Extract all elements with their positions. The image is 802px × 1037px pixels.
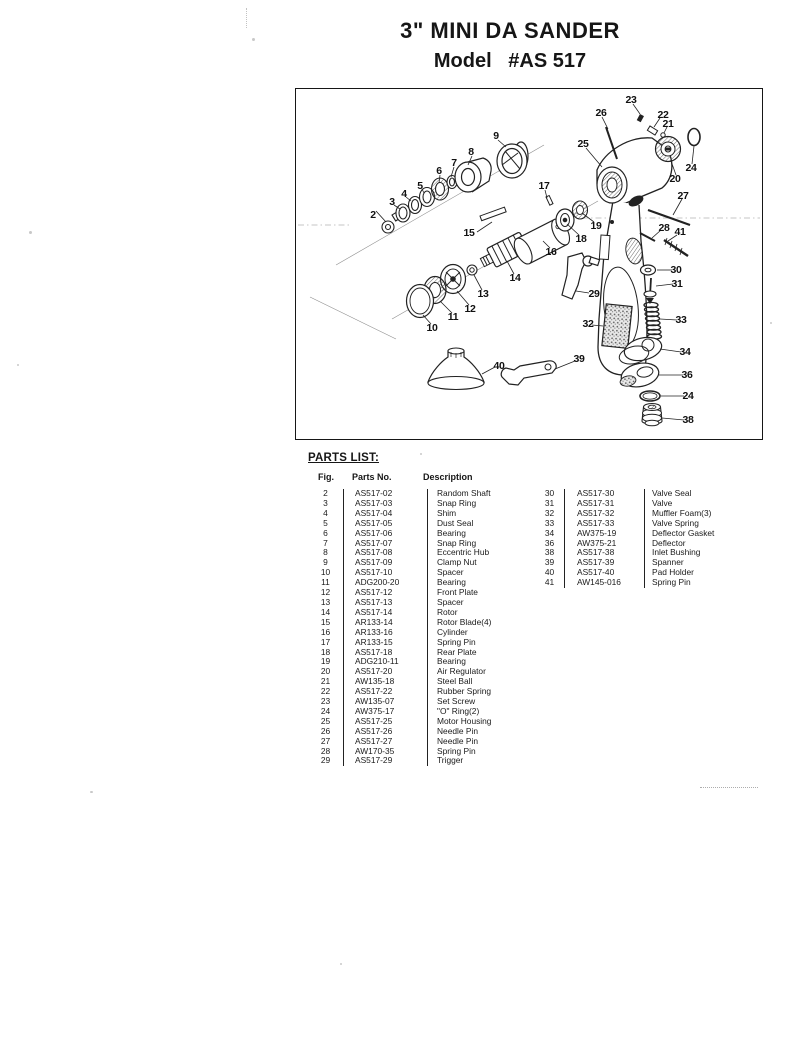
part-callout-number: 34: [679, 346, 690, 358]
part-callout-number: 9: [493, 130, 499, 142]
part-rotor-blade-drawing: [480, 207, 506, 221]
part-callout-number: 27: [677, 190, 688, 202]
scan-artifact: [29, 231, 32, 234]
part-description: Spring Pin: [428, 638, 578, 648]
part-callout-number: 12: [464, 303, 475, 315]
part-callout-number: 14: [509, 272, 520, 284]
part-callout-number: 23: [625, 94, 636, 106]
part-callout-number: 3: [389, 196, 395, 208]
title-line-1: 3" MINI DA SANDER: [220, 18, 800, 44]
part-callout-number: 38: [682, 414, 693, 426]
part-callout-number: 28: [658, 222, 669, 234]
part-number: AS517-29: [344, 756, 428, 766]
part-callout-number: 32: [582, 318, 593, 330]
part-number: AW145-016: [565, 578, 645, 588]
part-callout-number: 33: [675, 314, 686, 326]
part-valve-seal-drawing: [641, 265, 656, 275]
part-callout-number: 24: [682, 390, 693, 402]
part-callout-number: 30: [670, 264, 681, 276]
part-callout-number: 24: [685, 162, 696, 174]
exploded-parts-diagram: 2 3 4 5 6 7 8 9 15 17 16 18: [295, 88, 763, 440]
part-eccentric-hub-drawing: [455, 158, 491, 192]
scan-artifact: [17, 364, 19, 366]
parts-table-right: 30 AS517-30 Valve Seal 31 AS517-31 Valve…: [535, 489, 775, 588]
part-callout-number: 26: [595, 107, 606, 119]
part-number: AR133-15: [344, 638, 428, 648]
diagram-artwork: [296, 89, 762, 438]
part-callout-number: 6: [436, 165, 442, 177]
part-callout-number: 11: [448, 311, 459, 323]
part-callout-number: 13: [477, 288, 488, 300]
part-callout-number: 18: [575, 233, 586, 245]
scan-artifact: [252, 38, 255, 41]
part-callout-number: 2: [370, 209, 376, 221]
part-callout-number: 8: [468, 146, 474, 158]
part-spanner-drawing: [501, 361, 556, 385]
part-callout-number: 5: [417, 180, 423, 192]
column-header-description: Description: [423, 472, 473, 482]
part-callout-number: 21: [662, 118, 673, 130]
part-o-ring-top-drawing: [688, 129, 700, 146]
title-line-2: Model #AS 517: [220, 50, 800, 73]
part-description: Spring Pin: [645, 578, 775, 588]
part-spacer-large-drawing: [407, 285, 434, 318]
parts-list-heading: PARTS LIST:: [308, 452, 379, 464]
column-header-part-no: Parts No.: [352, 472, 392, 482]
scan-artifact: [420, 453, 422, 455]
column-header-fig: Fig.: [308, 472, 344, 482]
parts-table-row: 41 AW145-016 Spring Pin: [535, 578, 775, 588]
part-callout-number: 36: [681, 369, 692, 381]
parts-table-row: 29 AS517-29 Trigger: [308, 756, 578, 766]
part-callout-number: 40: [493, 360, 504, 372]
scan-artifact: [770, 322, 772, 324]
part-callout-number: 25: [577, 138, 588, 150]
parts-table-row: 17 AR133-15 Spring Pin: [308, 638, 578, 648]
part-callout-number: 15: [463, 227, 474, 239]
part-callout-number: 41: [674, 226, 685, 238]
part-fig-number: 29: [308, 756, 344, 766]
part-callout-number: 4: [401, 188, 407, 200]
part-callout-number: 31: [671, 278, 682, 290]
part-callout-number: 29: [588, 288, 599, 300]
part-spacer-small-drawing: [467, 265, 477, 275]
part-callout-number: 19: [590, 220, 601, 232]
part-spring-pin-41-drawing: [664, 238, 688, 256]
part-fig-number: 41: [535, 578, 565, 588]
part-pad-holder-drawing: [428, 348, 484, 390]
part-callout-number: 7: [451, 157, 457, 169]
part-callout-number: 16: [545, 246, 556, 258]
part-air-regulator-drawing: [656, 137, 681, 162]
part-muffler-foam-drawing: [602, 304, 632, 348]
part-callout-number: 17: [538, 180, 549, 192]
scan-artifact: [700, 787, 758, 788]
scan-artifact: [340, 963, 342, 965]
part-o-ring-bottom-drawing: [640, 391, 660, 401]
part-inlet-bushing-drawing: [642, 404, 662, 426]
part-rear-bearing-drawing: [573, 201, 588, 219]
part-callout-number: 39: [573, 353, 584, 365]
scan-artifact: [90, 791, 93, 793]
scanned-manual-page: 3" MINI DA SANDER Model #AS 517: [0, 0, 802, 1037]
scan-artifact: [246, 8, 247, 28]
part-callout-number: 20: [669, 173, 680, 185]
part-clamp-nut-drawing: [497, 142, 528, 178]
document-title: 3" MINI DA SANDER Model #AS 517: [220, 18, 800, 73]
part-description: Trigger: [428, 756, 578, 766]
part-fig-number: 17: [308, 638, 344, 648]
part-callout-number: 10: [426, 322, 437, 334]
